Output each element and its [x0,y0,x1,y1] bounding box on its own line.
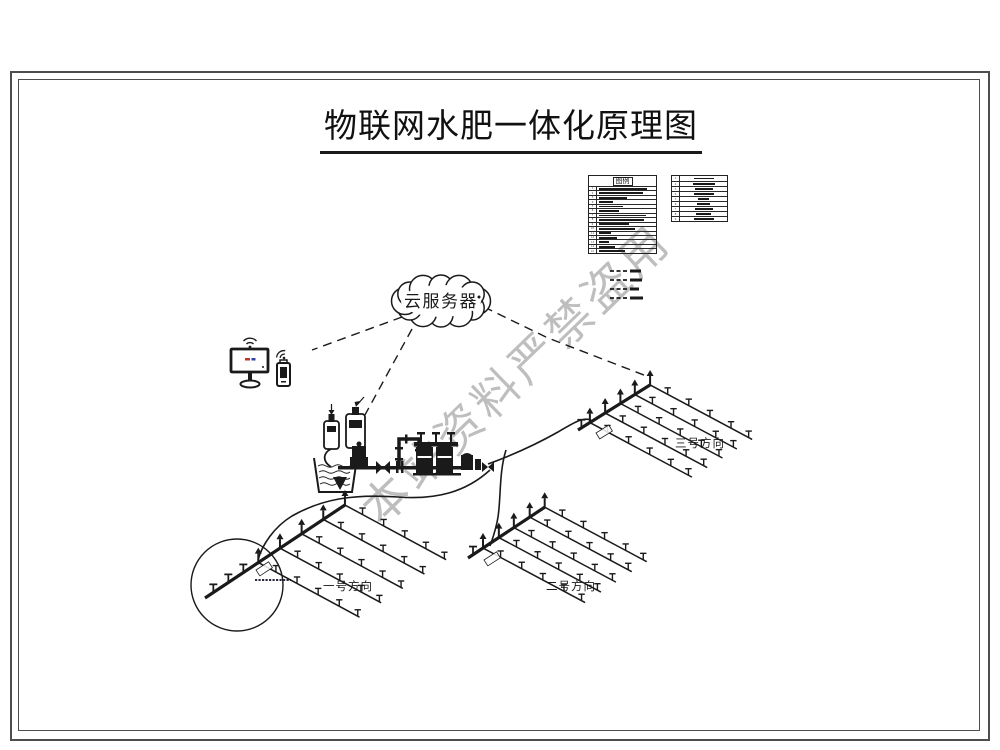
legend-row-number: 1 [672,176,680,181]
disc-filter-unit [461,453,494,472]
legend-linetype-text [630,288,639,291]
legend-row-text [599,237,617,239]
cloud-link-lines [312,307,649,424]
legend-row-number: 4 [589,200,597,203]
legend-row-text [599,188,647,190]
link-cloud-devices [312,317,402,350]
cloud-server: 云服务器 [392,275,491,327]
legend-row-number: 8 [672,212,680,216]
field-lateral-pipe [650,385,752,440]
legend-row-number: 6 [589,209,597,212]
foot-valve [333,477,347,490]
field-direction-label: 三号方向 [675,436,725,450]
legend-row-number: 2 [672,182,680,186]
legend-row-number: 8 [589,218,597,221]
title-underline [320,151,702,154]
legend-row-text [599,215,646,217]
legend-row: 9 [672,216,727,221]
wifi-icon [244,338,257,348]
link-cloud-field3 [484,307,649,377]
legend-row-text [599,223,629,225]
field-supply-pipes [258,419,591,560]
legend-row-number: 15 [589,249,597,252]
legend-row-text [696,213,711,215]
fertilizer-tank-2 [346,397,365,448]
field-grid-1: 一号方向 [205,490,448,617]
legend-row-number: 3 [589,196,597,199]
legend-row-number: 14 [589,245,597,248]
field-lateral-pipe [323,519,424,574]
legend-row-number: 7 [672,207,680,211]
monitor-icon [231,349,268,388]
legend-header-label: 图例 [613,177,633,186]
legend-row-text [599,192,643,194]
legend-row-number: 10 [589,227,597,230]
legend-row-text [599,201,613,203]
legend-row-text [694,178,714,180]
fertilizer-tank-1 [324,404,339,449]
legend-table-left: 图例 123456789101112131415 [588,175,657,254]
legend-row-text [599,241,609,243]
cloud-label: 云服务器 [404,292,478,311]
drawing-canvas: 物联网水肥一体化原理图 本站资料严禁盗用 图例 1234567891011121… [0,0,1000,750]
legend-row-number: 7 [589,214,597,217]
legend-row-number: 2 [589,191,597,194]
legend-row-text [694,218,714,220]
legend-row-text [693,183,715,185]
valve-icon [376,461,383,474]
legend-table-right: 123456789 [671,175,728,222]
legend-row-text [599,206,623,208]
legend-header: 图例 [589,176,656,186]
link-cloud-pump [360,329,412,424]
legend-linetype-text [630,279,642,282]
legend-row-text [695,188,713,190]
legend-linetype-text [630,297,643,300]
field-direction-label: 二号方向 [546,579,596,593]
legend-row-text [599,197,627,199]
legend-row-text [698,198,709,200]
legend-row-number: 4 [672,192,680,196]
field-lateral-pipe [545,507,647,562]
legend-row-number: 9 [672,217,680,221]
pump-fertilizer-station [314,397,494,492]
legend-row-text [694,193,714,195]
field-direction-label: 一号方向 [323,579,373,593]
field-lateral-pipe [345,505,446,560]
legend-row-number: 1 [589,187,597,190]
legend-row-number: 5 [589,205,597,208]
control-devices [231,338,290,387]
suction-hose [325,449,331,467]
legend-row-text [599,219,644,221]
legend-row-text [599,246,615,248]
legend-row-text [599,250,625,252]
legend-row: 15 [589,248,656,252]
field-tag-label [484,552,500,566]
legend-row-number: 3 [672,187,680,191]
field-grid-2: 二号方向 [468,492,647,602]
legend-linetype-text [630,270,641,273]
detail-callout-circle [191,539,291,631]
mobile-phone-icon [277,360,290,386]
legend-row-text [599,228,635,230]
legend-row-number: 12 [589,236,597,239]
field-grid-3: 三号方向 [577,370,752,477]
cloud-dot [478,296,481,299]
legend-row-number: 6 [672,202,680,206]
legend-row-text [599,210,619,212]
legend-row-number: 5 [672,197,680,201]
field-lateral-pipe [280,548,381,603]
legend-row-text [697,203,710,205]
field-main-pipe [468,507,545,558]
legend-row-text [599,232,611,234]
field-main-pipe [578,385,650,430]
legend-linetype-items [610,270,643,300]
legend-row-text [695,208,713,210]
drawing-title: 物联网水肥一体化原理图 [311,99,711,147]
